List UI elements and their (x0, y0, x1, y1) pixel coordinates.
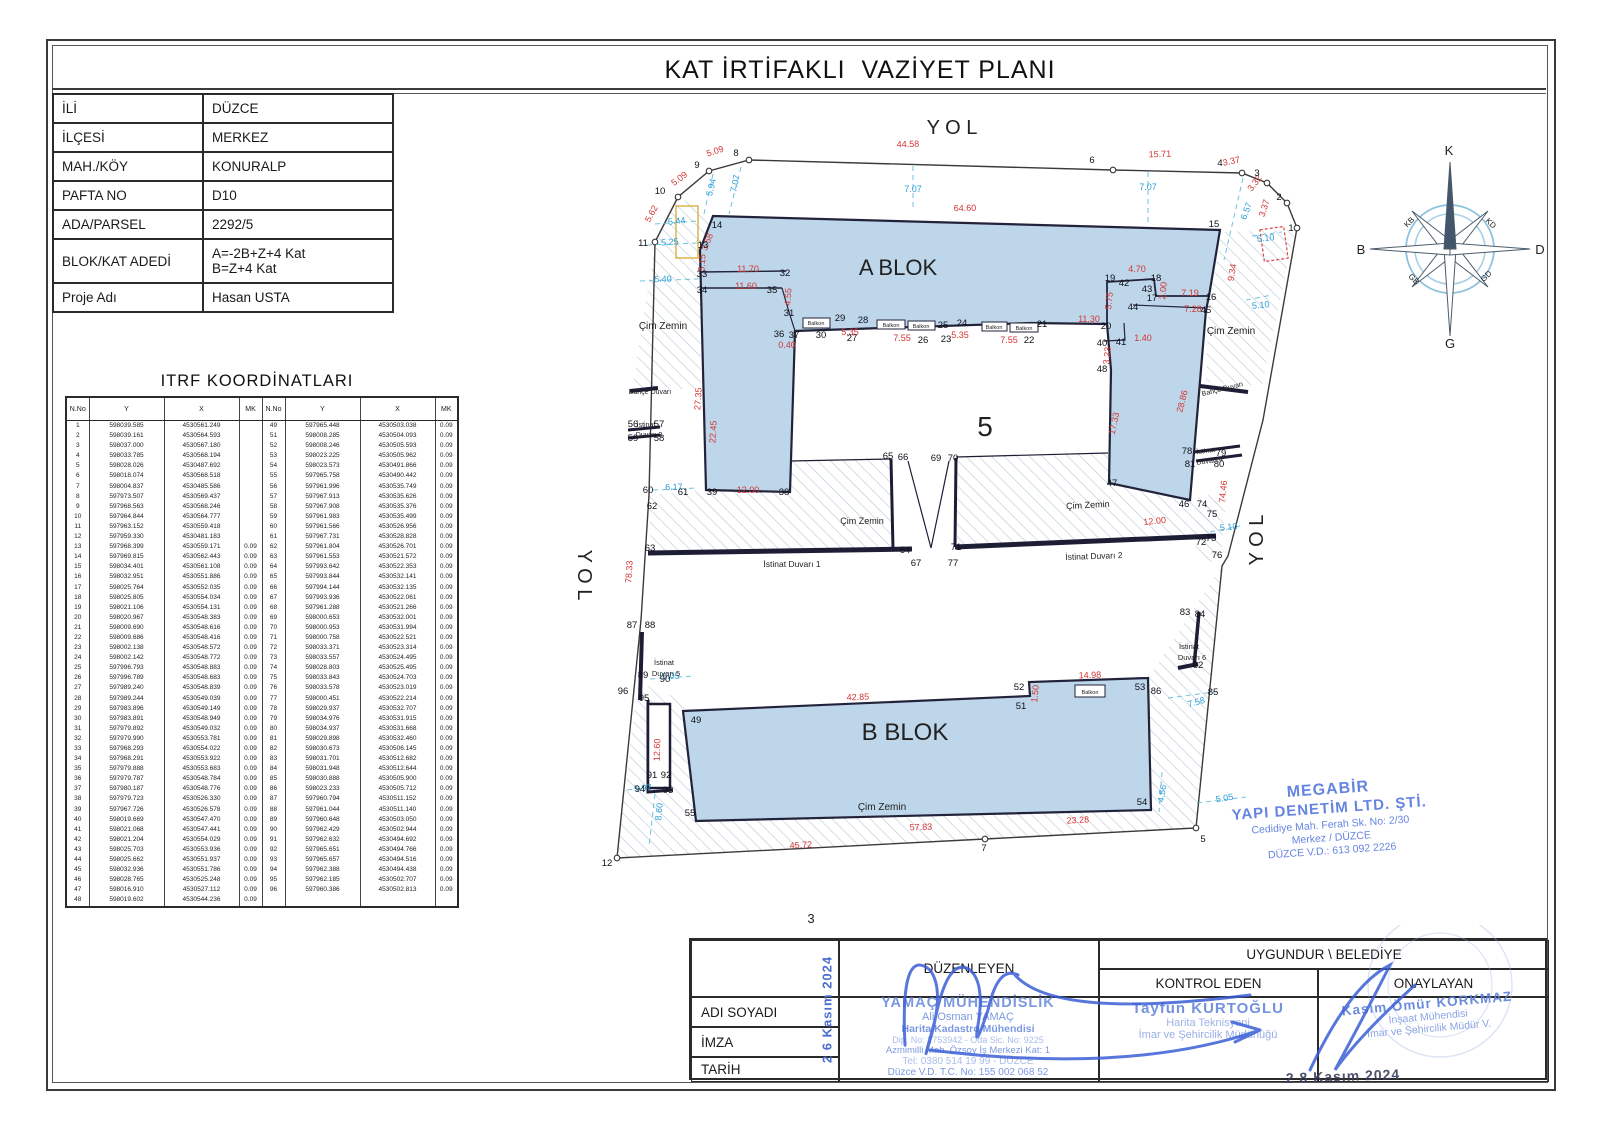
itrf-row: 13597968.3994530559.1710.0962597961.8044… (66, 542, 458, 552)
plan-text-label: Duvarı 5 (652, 669, 680, 678)
point-number-label: 81 (1185, 459, 1196, 470)
info-label: BLOK/KAT ADEDİ (53, 239, 203, 283)
itrf-cell: 597961.044 (285, 805, 360, 815)
itrf-cell: 4530505.712 (360, 784, 435, 794)
point-number-label: 5 (1200, 834, 1205, 845)
itrf-cell: 597967.913 (285, 492, 360, 502)
itrf-cell: 39 (66, 805, 89, 815)
dimension-label-red: 4.55 (783, 288, 794, 306)
itrf-cell: 4530522.061 (360, 593, 435, 603)
itrf-cell: 90 (262, 825, 285, 835)
itrf-cell: 597968.563 (89, 502, 164, 512)
itrf-cell: 93 (262, 855, 285, 865)
itrf-cell: 597967.908 (285, 502, 360, 512)
info-value: KONURALP (203, 152, 393, 181)
itrf-cell: 38 (66, 794, 89, 804)
plan-text-label: Balkon (986, 325, 1003, 331)
itrf-cell: 4530548.883 (164, 663, 239, 673)
itrf-cell: 0.09 (435, 835, 458, 845)
itrf-cell: 11 (66, 522, 89, 532)
plan-text-label: İstinat Duvarı 1 (763, 559, 820, 569)
itrf-row: 20598020.9674530548.3830.0969598000.6534… (66, 613, 458, 623)
itrf-row: 15598034.4014530561.1080.0964597993.6424… (66, 562, 458, 572)
point-number-label: 45 (1201, 305, 1212, 316)
point-number-label: 64 (900, 545, 911, 556)
point-number-label: 72 (1196, 537, 1207, 548)
itrf-cell: 4530535.749 (360, 482, 435, 492)
plan-text-label: K (1445, 143, 1454, 158)
itrf-cell: 66 (262, 583, 285, 593)
itrf-cell: 598019.602 (89, 895, 164, 906)
info-table-row: BLOK/KAT ADEDİA=-2B+Z+4 Kat B=Z+4 Kat (53, 239, 393, 283)
itrf-cell: 597968.293 (89, 744, 164, 754)
dimension-label-red: 78.33 (623, 560, 634, 583)
itrf-cell: 598021.106 (89, 603, 164, 613)
dimension-label-red: 45.72 (789, 839, 812, 850)
point-number-label: 3 (1254, 168, 1259, 179)
point-number-label: 74 (1197, 499, 1208, 510)
itrf-cell: 598000.758 (285, 633, 360, 643)
itrf-cell: 597962.429 (285, 825, 360, 835)
itrf-cell: 32 (66, 734, 89, 744)
itrf-cell: 4530491.866 (360, 461, 435, 471)
itrf-cell: 47 (66, 885, 89, 895)
itrf-cell: 598004.837 (89, 482, 164, 492)
itrf-cell: 4530523.314 (360, 643, 435, 653)
itrf-cell: 43 (66, 845, 89, 855)
point-number-label: 27 (847, 333, 858, 344)
itrf-cell: 0.09 (435, 623, 458, 633)
point-number-label: 87 (627, 620, 638, 631)
itrf-cell: 41 (66, 825, 89, 835)
itrf-row: 22598009.6864530548.4160.0971598000.7584… (66, 633, 458, 643)
itrf-row: 24598002.1424530548.7720.0973598033.5574… (66, 653, 458, 663)
info-table-row: PAFTA NOD10 (53, 181, 393, 210)
itrf-cell: 46 (66, 875, 89, 885)
itrf-cell: 0.09 (239, 542, 262, 552)
itrf-cell: 0.09 (435, 502, 458, 512)
itrf-cell: 0.09 (435, 663, 458, 673)
itrf-cell: 0.09 (239, 855, 262, 865)
itrf-cell: 598033.557 (285, 653, 360, 663)
dimension-label-red: 11.60 (735, 281, 757, 291)
dimension-label-blue: 5.94 (704, 178, 718, 197)
signature-strokes (904, 965, 1415, 1070)
itrf-cell: 0.09 (239, 694, 262, 704)
itrf-cell: 598039.161 (89, 431, 164, 441)
itrf-cell: 18 (66, 593, 89, 603)
itrf-cell: 597959.330 (89, 532, 164, 542)
itrf-cell: 597983.891 (89, 714, 164, 724)
itrf-cell: 6 (66, 471, 89, 481)
itrf-cell: 76 (262, 683, 285, 693)
point-number-label: 26 (918, 335, 929, 346)
itrf-cell: 84 (262, 764, 285, 774)
itrf-row: 48598019.6024530544.2360.09 (66, 895, 458, 906)
itrf-cell: 62 (262, 542, 285, 552)
dimension-label-red: 64.60 (954, 203, 977, 213)
itrf-cell: 0.09 (435, 653, 458, 663)
point-number-label: 78 (1182, 446, 1193, 457)
itrf-cell: 4530511.152 (360, 794, 435, 804)
itrf-cell: 598018.074 (89, 471, 164, 481)
itrf-cell: 598032.936 (89, 865, 164, 875)
itrf-cell: 0.09 (239, 704, 262, 714)
itrf-cell: 4530481.183 (164, 532, 239, 542)
itrf-cell: 4530553.781 (164, 734, 239, 744)
itrf-cell: 35 (66, 764, 89, 774)
itrf-cell: 44 (66, 855, 89, 865)
itrf-cell (285, 895, 360, 906)
itrf-cell: 4530526.701 (360, 542, 435, 552)
plan-text-label: Çim Zemin (840, 516, 884, 526)
info-value: D10 (203, 181, 393, 210)
itrf-cell: 4530504.093 (360, 431, 435, 441)
plan-text-label: Y O L (927, 117, 978, 139)
itrf-cell: 60 (262, 522, 285, 532)
dimension-label-blue: 7.07 (1139, 182, 1157, 192)
point-number-label: 21 (1037, 319, 1048, 330)
itrf-cell: 4530547.441 (164, 825, 239, 835)
itrf-cell: 4530564.593 (164, 431, 239, 441)
point-number-label: 7 (981, 843, 986, 854)
itrf-cell: 597967.731 (285, 532, 360, 542)
itrf-cell: 598034.976 (285, 714, 360, 724)
dimension-label-blue: 8.60 (653, 802, 665, 820)
dimension-label-blue: 5.05 (1215, 792, 1234, 805)
signature-overlay (830, 925, 1550, 1125)
point-number-label: 94 (635, 784, 646, 795)
info-label: İLİ (53, 94, 203, 123)
itrf-cell (239, 532, 262, 542)
itrf-cell: 4530526.330 (164, 794, 239, 804)
itrf-row: 30597983.8914530548.9490.0979598034.9764… (66, 714, 458, 724)
itrf-cell: 4 (66, 451, 89, 461)
point-number-label: 89 (638, 670, 649, 681)
point-number-label: 75 (1207, 509, 1218, 520)
itrf-cell: 598031.701 (285, 754, 360, 764)
block-b-outline (683, 678, 1151, 821)
info-label: ADA/PARSEL (53, 210, 203, 239)
itrf-cell: 26 (66, 673, 89, 683)
itrf-cell: 598008.285 (285, 431, 360, 441)
itrf-cell: 597979.888 (89, 764, 164, 774)
point-number-label: 48 (1097, 364, 1108, 375)
itrf-cell: 0.09 (239, 562, 262, 572)
itrf-cell: 4530522.353 (360, 562, 435, 572)
dimension-label-red: 7.55 (1000, 335, 1018, 345)
itrf-row: 27597989.2404530548.8390.0976598033.5784… (66, 683, 458, 693)
itrf-cell: 0.09 (239, 734, 262, 744)
itrf-cell: 4530568.246 (164, 502, 239, 512)
itrf-cell: 4530532.460 (360, 734, 435, 744)
itrf-cell: 16 (66, 572, 89, 582)
itrf-cell: 82 (262, 744, 285, 754)
dimension-label-red: 3.37 (1222, 154, 1241, 167)
itrf-cell: 0.09 (239, 845, 262, 855)
itrf-cell: 598033.578 (285, 683, 360, 693)
itrf-cell: 4530503.050 (360, 815, 435, 825)
dimension-label-blue: 5.25 (661, 236, 679, 247)
itrf-cell: 4530524.703 (360, 673, 435, 683)
itrf-cell: 9 (66, 502, 89, 512)
itrf-cell: 598009.690 (89, 623, 164, 633)
dimension-label-blue: 7.07 (728, 174, 741, 193)
itrf-cell: 78 (262, 704, 285, 714)
itrf-cell: 4530544.236 (164, 895, 239, 906)
itrf-cell: 598034.401 (89, 562, 164, 572)
itrf-cell: 0.09 (239, 815, 262, 825)
itrf-cell: 0.09 (435, 482, 458, 492)
itrf-cell: 0.09 (435, 683, 458, 693)
point-number-label: 73 (1206, 533, 1217, 544)
itrf-cell: 0.09 (435, 815, 458, 825)
itrf-cell (360, 895, 435, 906)
plan-text-label: Y O L (1246, 515, 1268, 566)
itrf-row: 45598032.9364530551.7860.0994597962.3884… (66, 865, 458, 875)
itrf-row: 8597973.5074530569.43757597967.913453053… (66, 492, 458, 502)
point-number-label: 4 (1217, 158, 1222, 169)
itrf-row: 21598009.6904530548.6160.0970598000.9534… (66, 623, 458, 633)
itrf-cell: 4530494.692 (360, 835, 435, 845)
itrf-cell (239, 431, 262, 441)
itrf-cell: 4530548.772 (164, 653, 239, 663)
itrf-cell: 4530549.032 (164, 724, 239, 734)
itrf-cell: 598000.653 (285, 613, 360, 623)
plan-text-label: G (1445, 336, 1455, 351)
point-number-label: 51 (1016, 701, 1027, 712)
itrf-column-header: X (360, 397, 435, 421)
itrf-cell: 0.09 (435, 451, 458, 461)
itrf-cell: 4530526.956 (360, 522, 435, 532)
itrf-cell: 0.09 (239, 825, 262, 835)
itrf-cell: 0.09 (435, 512, 458, 522)
itrf-cell: 4530512.682 (360, 754, 435, 764)
itrf-cell: 59 (262, 512, 285, 522)
itrf-cell: 0.09 (239, 794, 262, 804)
plan-text-label: Balkon (1082, 690, 1099, 696)
itrf-cell: 598033.371 (285, 643, 360, 653)
itrf-cell: 597961.553 (285, 552, 360, 562)
itrf-cell: 0.09 (239, 583, 262, 593)
itrf-cell (239, 441, 262, 451)
itrf-cell: 4530554.034 (164, 593, 239, 603)
info-table-row: İLİDÜZCE (53, 94, 393, 123)
itrf-cell (262, 895, 285, 906)
point-number-label: 37 (789, 330, 800, 341)
itrf-cell: 4530505.593 (360, 441, 435, 451)
itrf-cell: 4530552.035 (164, 583, 239, 593)
itrf-cell: 597961.288 (285, 603, 360, 613)
itrf-cell: 597965.448 (285, 421, 360, 432)
dimension-label-red: 5.35 (951, 330, 969, 340)
dimension-label-blue: 6.57 (1238, 201, 1253, 221)
itrf-cell: 5 (66, 461, 89, 471)
itrf-cell: 0.09 (435, 673, 458, 683)
point-number-label: 8 (733, 148, 738, 159)
itrf-column-header: MK (239, 397, 262, 421)
point-number-label: 92 (661, 770, 672, 781)
itrf-cell: 598028.803 (285, 663, 360, 673)
itrf-cell: 598019.669 (89, 815, 164, 825)
point-number-label: 66 (898, 452, 909, 463)
itrf-cell: 597989.244 (89, 694, 164, 704)
itrf-cell: 0.09 (239, 805, 262, 815)
point-number-label: 33 (697, 269, 708, 280)
itrf-column-header: X (164, 397, 239, 421)
dimension-label-red: 5.75 (1103, 291, 1115, 309)
itrf-cell: 20 (66, 613, 89, 623)
itrf-cell: 597989.240 (89, 683, 164, 693)
itrf-cell: 598029.898 (285, 734, 360, 744)
itrf-cell: 597967.726 (89, 805, 164, 815)
itrf-cell: 598008.246 (285, 441, 360, 451)
itrf-cell: 598023.225 (285, 451, 360, 461)
itrf-cell: 4530521.572 (360, 552, 435, 562)
dimension-label-red: 23.28 (1066, 814, 1089, 825)
point-number-label: 41 (1116, 337, 1127, 348)
itrf-row: 39597967.7264530526.5780.0988597961.0444… (66, 805, 458, 815)
itrf-cell: 63 (262, 552, 285, 562)
point-number-label: 44 (1128, 302, 1139, 313)
itrf-cell: 4530569.437 (164, 492, 239, 502)
itrf-cell: 598023.233 (285, 784, 360, 794)
itrf-table-title: ITRF KOORDİNATLARI (65, 372, 449, 391)
itrf-cell: 0.09 (239, 552, 262, 562)
point-number-label: 54 (1137, 797, 1148, 808)
itrf-cell: 0.09 (239, 744, 262, 754)
point-number-label: 40 (1097, 338, 1108, 349)
itrf-row: 41598021.0684530547.4410.0990597962.4294… (66, 825, 458, 835)
itrf-row: 5598028.0264530487.69254598023.573453049… (66, 461, 458, 471)
itrf-cell: 0.09 (435, 613, 458, 623)
itrf-cell: 4530551.937 (164, 855, 239, 865)
plan-text-label: GB (1406, 272, 1421, 287)
itrf-row: 34597968.2914530553.9220.0983598031.7014… (66, 754, 458, 764)
itrf-cell: 4530535.626 (360, 492, 435, 502)
point-number-label: 11 (638, 238, 648, 249)
plan-text-label: B BLOK (862, 719, 949, 746)
itrf-cell: 4530502.707 (360, 875, 435, 885)
point-number-label: 69 (931, 453, 942, 464)
info-label: İLÇESİ (53, 123, 203, 152)
itrf-cell: 4530548.776 (164, 784, 239, 794)
itrf-cell: 81 (262, 734, 285, 744)
plan-text-label: İstinat (1179, 642, 1200, 651)
itrf-cell: 4530531.668 (360, 724, 435, 734)
itrf-cell: 4530551.886 (164, 572, 239, 582)
plan-text-label: Çim Zemin (858, 802, 906, 813)
itrf-row: 33597968.2934530554.0220.0982598030.6734… (66, 744, 458, 754)
point-number-label: 29 (835, 313, 846, 324)
itrf-cell: 13 (66, 542, 89, 552)
itrf-cell: 0.09 (239, 865, 262, 875)
point-number-label: 18 (1151, 273, 1162, 284)
itrf-cell: 4530506.145 (360, 744, 435, 754)
itrf-cell: 0.09 (435, 572, 458, 582)
point-number-label: 88 (645, 620, 656, 631)
itrf-cell: 598028.026 (89, 461, 164, 471)
info-table-row: ADA/PARSEL2292/5 (53, 210, 393, 239)
point-number-label: 34 (697, 285, 708, 296)
dimension-label-red: 12.60 (652, 738, 663, 761)
itrf-cell: 53 (262, 451, 285, 461)
itrf-cell (239, 421, 262, 432)
itrf-cell: 597994.144 (285, 583, 360, 593)
itrf-cell: 4530523.019 (360, 683, 435, 693)
itrf-cell: 77 (262, 694, 285, 704)
dimension-label-red: 5.62 (643, 204, 660, 224)
itrf-cell: 4530505.962 (360, 451, 435, 461)
itrf-cell: 4530505.900 (360, 774, 435, 784)
title-separator (52, 88, 1546, 90)
itrf-cell: 598031.948 (285, 764, 360, 774)
itrf-row: 29597983.8964530549.1490.0978598029.9374… (66, 704, 458, 714)
itrf-cell: 24 (66, 653, 89, 663)
itrf-cell (435, 895, 458, 906)
itrf-cell: 71 (262, 633, 285, 643)
itrf-cell: 4530526.578 (164, 805, 239, 815)
itrf-cell: 61 (262, 532, 285, 542)
itrf-cell: 4530548.683 (164, 673, 239, 683)
itrf-cell: 83 (262, 754, 285, 764)
itrf-cell: 0.09 (435, 532, 458, 542)
dimension-label-red: 27.35 (692, 387, 704, 410)
itrf-cell: 4530568.194 (164, 451, 239, 461)
itrf-cell: 4530548.616 (164, 623, 239, 633)
itrf-cell: 597980.187 (89, 784, 164, 794)
itrf-cell: 2 (66, 431, 89, 441)
plan-text-label: Balkon (808, 321, 825, 327)
dimension-label-red: 7.55 (893, 333, 911, 343)
itrf-cell: 65 (262, 572, 285, 582)
itrf-row: 11597963.1524530559.41860597961.56645305… (66, 522, 458, 532)
itrf-row: 40598019.6694530547.4700.0989597960.6484… (66, 815, 458, 825)
itrf-cell: 4530548.784 (164, 774, 239, 784)
itrf-cell: 55 (262, 471, 285, 481)
itrf-cell: 597968.399 (89, 542, 164, 552)
itrf-cell: 597961.983 (285, 512, 360, 522)
plan-text-label: İstinat (1196, 445, 1216, 457)
itrf-cell: 597993.642 (285, 562, 360, 572)
itrf-cell: 1 (66, 421, 89, 432)
itrf-cell: 0.09 (239, 643, 262, 653)
itrf-cell (239, 461, 262, 471)
point-number-label: 67 (911, 558, 922, 569)
dimension-label-red: 7.28 (1184, 304, 1202, 314)
itrf-row: 7598004.8374530485.58656597961.996453053… (66, 482, 458, 492)
itrf-cell: 0.09 (239, 754, 262, 764)
itrf-cell: 4530568.518 (164, 471, 239, 481)
itrf-row: 23598002.1384530548.5720.0972598033.3714… (66, 643, 458, 653)
itrf-cell: 0.09 (239, 663, 262, 673)
itrf-cell: 0.09 (239, 572, 262, 582)
itrf-cell: 597964.844 (89, 512, 164, 522)
point-number-label: 63 (645, 543, 656, 554)
itrf-cell: 34 (66, 754, 89, 764)
itrf-cell: 597979.787 (89, 774, 164, 784)
itrf-cell: 597961.804 (285, 542, 360, 552)
plan-text-label: Çim Zemin (1207, 326, 1255, 337)
itrf-cell: 8 (66, 492, 89, 502)
itrf-cell: 0.09 (435, 855, 458, 865)
itrf-cell: 598025.764 (89, 583, 164, 593)
dimension-label-red: 5.09 (705, 144, 725, 159)
point-number-label: 84 (1195, 609, 1206, 620)
dimension-label-red: 0.40 (778, 340, 796, 350)
point-number-label: 19 (1105, 273, 1116, 284)
itrf-cell: 28 (66, 694, 89, 704)
